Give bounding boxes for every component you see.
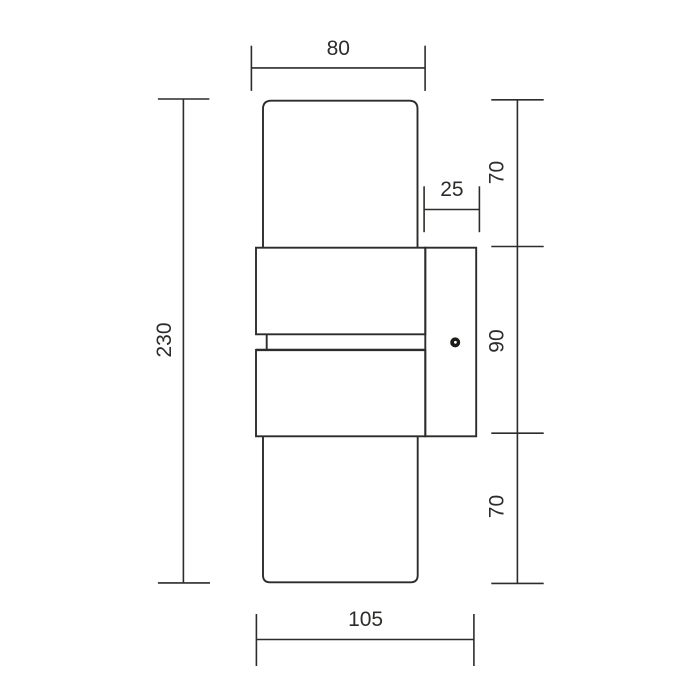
svg-text:90: 90	[485, 329, 508, 352]
svg-text:80: 80	[327, 37, 350, 60]
svg-text:70: 70	[485, 495, 508, 518]
svg-text:25: 25	[440, 178, 463, 201]
svg-text:70: 70	[485, 161, 508, 184]
svg-text:230: 230	[153, 322, 176, 357]
svg-text:105: 105	[348, 608, 383, 631]
